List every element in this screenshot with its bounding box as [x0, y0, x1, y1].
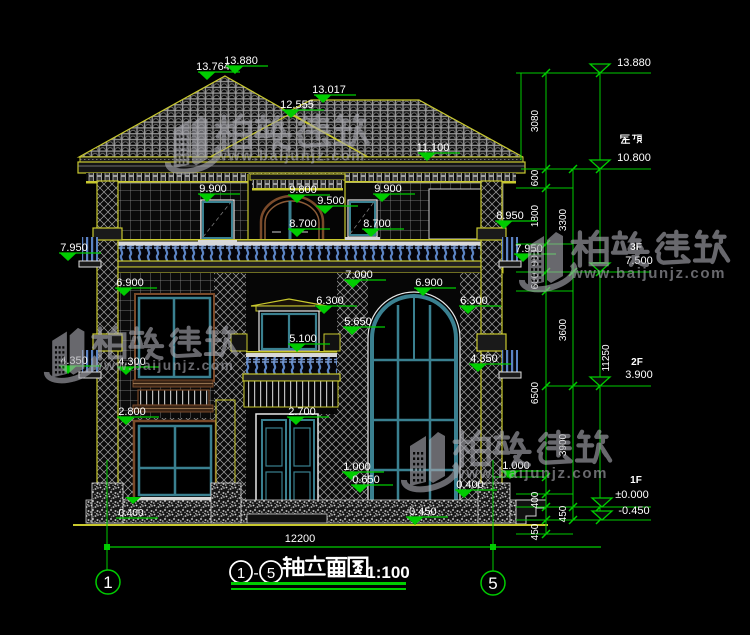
svg-text:6.300: 6.300 — [460, 295, 488, 307]
svg-text:1: 1 — [103, 573, 112, 592]
svg-text:1: 1 — [237, 565, 245, 582]
svg-text:9.500: 9.500 — [317, 195, 345, 207]
svg-text:4.350: 4.350 — [470, 353, 498, 365]
svg-text:±0.000: ±0.000 — [615, 489, 649, 501]
svg-text:12200: 12200 — [285, 533, 316, 545]
svg-text:600: 600 — [530, 169, 541, 186]
svg-text:-0.450: -0.450 — [405, 506, 436, 518]
svg-text:www.baijunjz.com: www.baijunjz.com — [214, 149, 365, 165]
svg-text:5: 5 — [267, 565, 275, 582]
svg-text:2.700: 2.700 — [288, 406, 316, 418]
svg-text:1.000: 1.000 — [343, 461, 371, 473]
svg-text:www.baijunjz.com: www.baijunjz.com — [570, 265, 726, 282]
svg-text:12.555: 12.555 — [280, 99, 314, 111]
svg-text:www.baijunjz.com: www.baijunjz.com — [452, 465, 608, 482]
svg-text:6.900: 6.900 — [116, 277, 144, 289]
svg-text:450: 450 — [530, 523, 541, 540]
svg-text:-0.450: -0.450 — [618, 505, 649, 517]
svg-text:3600: 3600 — [558, 318, 569, 341]
svg-text:450: 450 — [558, 505, 569, 522]
svg-text:3300: 3300 — [558, 208, 569, 231]
svg-text:13.880: 13.880 — [617, 57, 651, 69]
svg-text:11.100: 11.100 — [417, 142, 450, 154]
svg-text:9.800: 9.800 — [289, 184, 317, 196]
svg-text:1:100: 1:100 — [366, 563, 409, 582]
svg-text:8.950: 8.950 — [496, 210, 524, 222]
svg-text:-: - — [253, 565, 258, 582]
svg-text:6500: 6500 — [530, 381, 541, 404]
svg-text:2F: 2F — [631, 357, 643, 368]
svg-text:2.800: 2.800 — [118, 406, 146, 418]
svg-text:5.650: 5.650 — [344, 316, 372, 328]
svg-text:400: 400 — [530, 491, 541, 508]
svg-text:8.700: 8.700 — [363, 218, 391, 230]
svg-text:0.400: 0.400 — [118, 508, 143, 519]
svg-text:1800: 1800 — [530, 204, 541, 227]
svg-text:5: 5 — [488, 574, 497, 593]
svg-text:3080: 3080 — [530, 109, 541, 132]
svg-text:8.700: 8.700 — [289, 218, 317, 230]
svg-text:13.880: 13.880 — [224, 55, 258, 67]
svg-text:7.950: 7.950 — [60, 242, 88, 254]
svg-text:www.baijunjz.com: www.baijunjz.com — [91, 358, 235, 373]
svg-text:9.900: 9.900 — [374, 183, 402, 195]
svg-text:1F: 1F — [630, 475, 642, 486]
svg-text:7.000: 7.000 — [345, 269, 373, 281]
svg-text:9.900: 9.900 — [199, 183, 227, 195]
svg-text:0.650: 0.650 — [352, 474, 380, 486]
svg-text:5.100: 5.100 — [289, 333, 317, 345]
svg-text:10.800: 10.800 — [617, 152, 651, 164]
svg-text:3.900: 3.900 — [625, 369, 653, 381]
svg-text:11250: 11250 — [601, 344, 612, 372]
svg-text:6.300: 6.300 — [316, 295, 344, 307]
svg-text:6.900: 6.900 — [415, 277, 443, 289]
svg-text:13.017: 13.017 — [312, 84, 346, 96]
